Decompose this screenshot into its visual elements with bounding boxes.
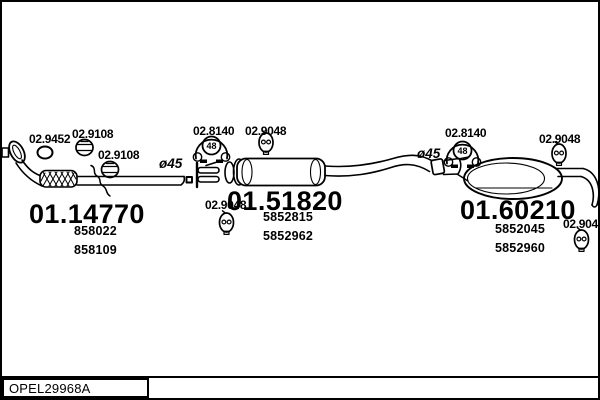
diameter-label-front: ø45 [159,156,182,171]
oem-code-middle-1: 5852815 [263,210,313,224]
fitting-code-hanger-middle: 02.8140 [193,124,234,138]
clamp-9048-icon [575,228,589,252]
fitting-code-clamp-front-a: 02.9108 [72,127,113,141]
fitting-code-clamp-middle-top: 02.9048 [245,124,286,138]
fitting-code-hanger-rear: 02.8140 [445,126,486,140]
pipe-break-mark [91,166,110,197]
catalog-code-box: OPEL29968A [2,378,149,398]
middle-muffler [225,159,325,186]
front-flange [2,139,28,165]
oem-code-rear-2: 5852960 [495,241,545,255]
hanger-size-label: 48 [457,146,467,156]
pipe-clamp-joint [431,159,445,175]
fitting-code-gasket: 02.9452 [29,132,70,146]
fitting-code-clamp-rear-top: 02.9048 [539,132,580,146]
oem-code-middle-2: 5852962 [263,229,313,243]
exhaust-catalog-page: 48 48 [0,0,600,400]
clamp-9108-icon [76,140,93,156]
oem-code-front-1: 858022 [74,224,117,238]
catalog-code: OPEL29968A [9,381,91,396]
diameter-label-rear: ø45 [417,146,440,161]
hanger-8140-icon: 48 [193,137,229,164]
intermediate-pipe [325,155,461,176]
gasket-ring-icon [38,147,53,159]
clamp-9108-icon [102,162,119,178]
hanger-8140-icon: 48 [444,142,480,169]
hanger-size-label: 48 [206,141,216,151]
middle-joint [187,161,223,188]
oem-code-front-2: 858109 [74,243,117,257]
oem-code-rear-1: 5852045 [495,222,545,236]
tailpipe-tip [592,205,597,207]
fitting-code-clamp-front-b: 02.9108 [98,148,139,162]
